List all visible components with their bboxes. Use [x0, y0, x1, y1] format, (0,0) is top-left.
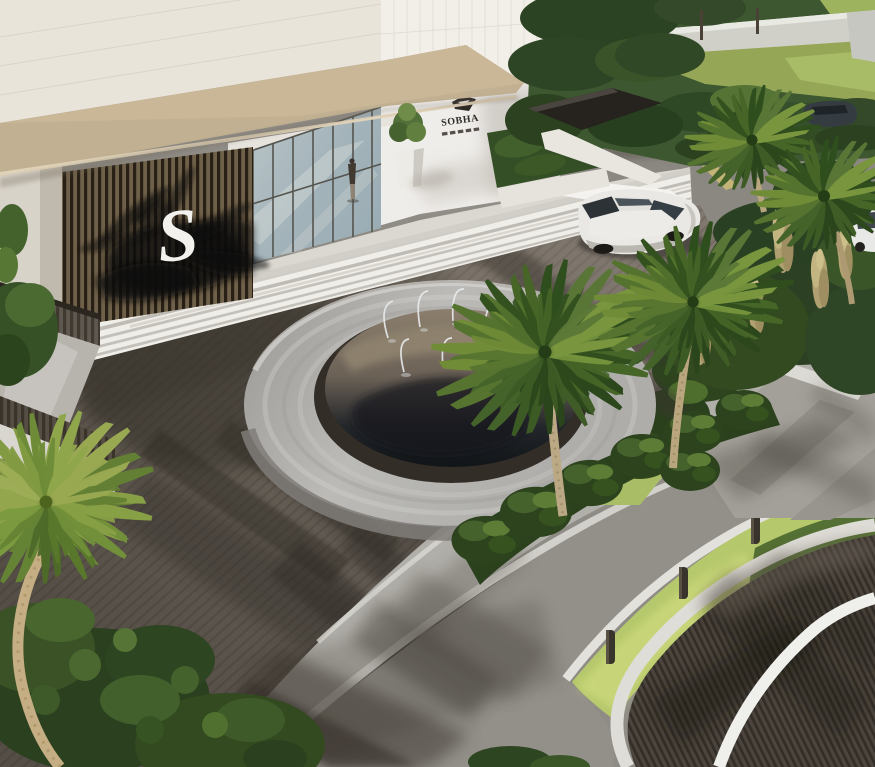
svg-text:S: S: [153, 193, 203, 279]
